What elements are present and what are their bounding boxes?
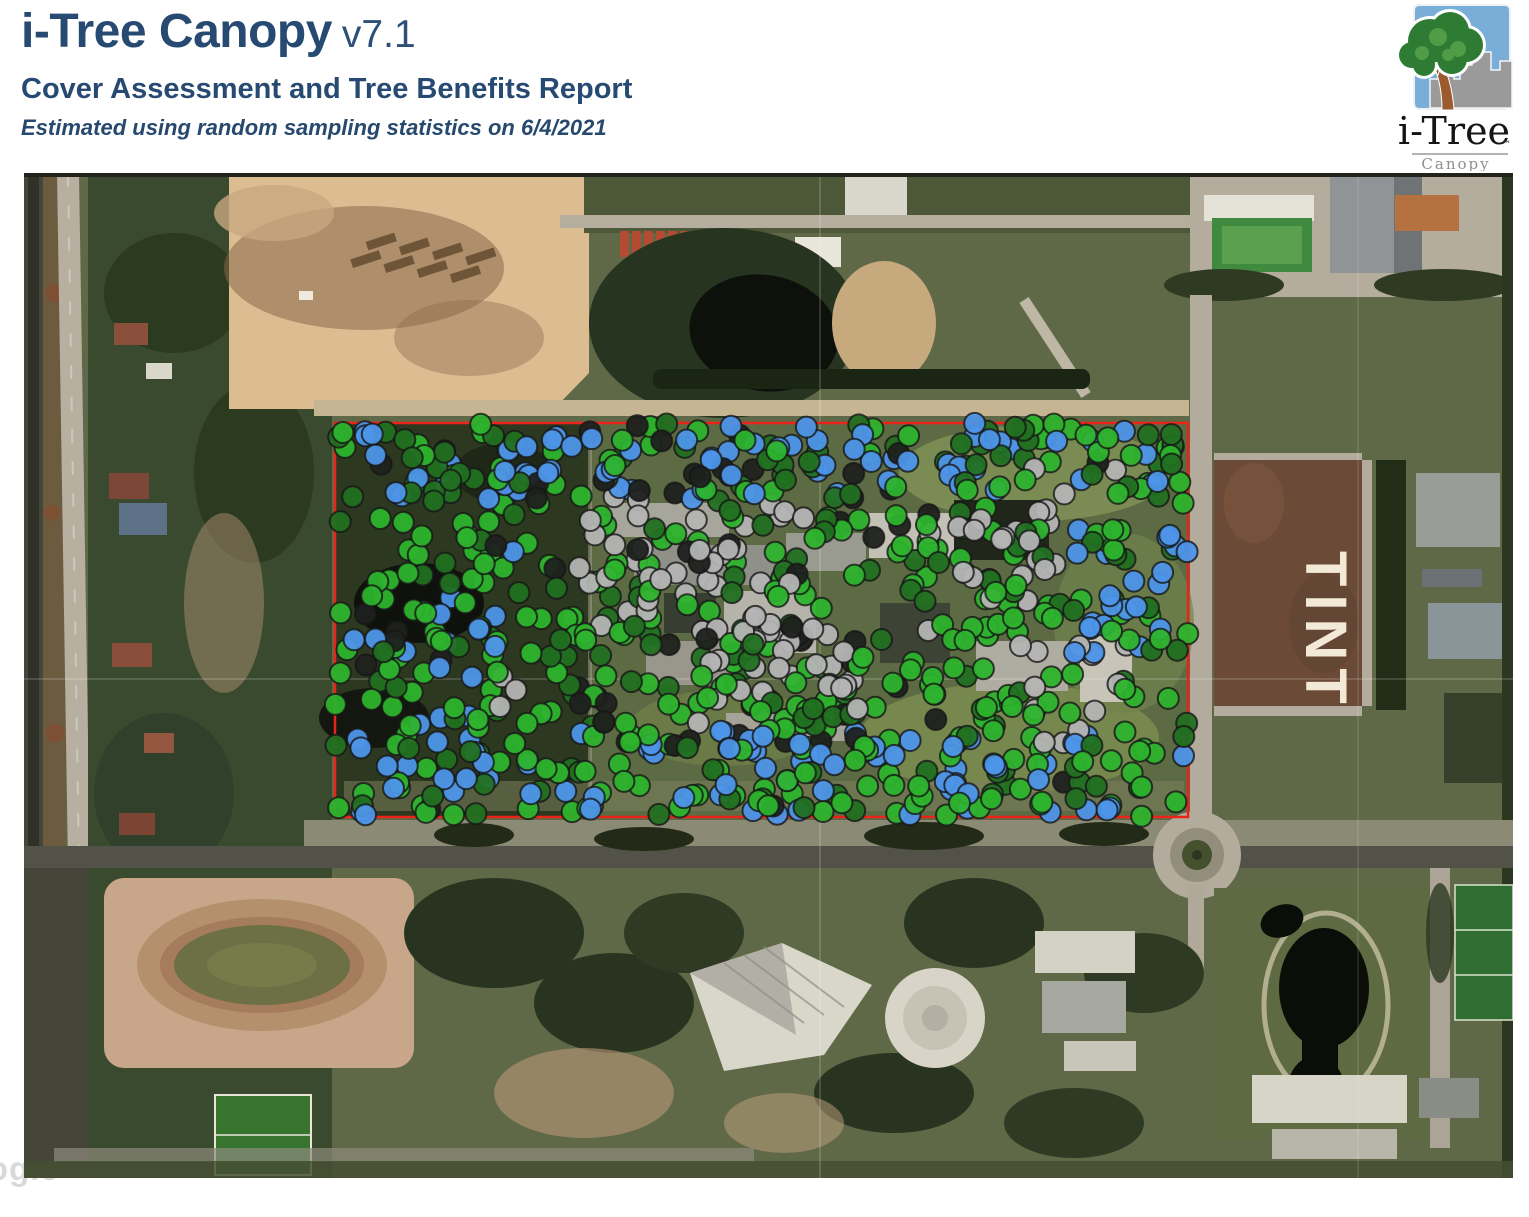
sample-point-bright-green bbox=[1102, 519, 1123, 540]
sample-point-bright-green bbox=[455, 592, 476, 613]
sample-point-black bbox=[570, 693, 591, 714]
sample-point-black bbox=[593, 711, 614, 732]
sample-point-black bbox=[485, 535, 506, 556]
sample-point-blue bbox=[1177, 541, 1198, 562]
sample-point-bright-green bbox=[330, 663, 351, 684]
sample-point-dark-green bbox=[1082, 464, 1103, 485]
sample-point-bright-green bbox=[1023, 705, 1044, 726]
sample-point-bright-green bbox=[857, 776, 878, 797]
sample-point-blue bbox=[897, 451, 918, 472]
sample-point-bright-green bbox=[981, 788, 1002, 809]
sample-point-gray bbox=[953, 562, 974, 583]
sample-point-gray bbox=[1010, 635, 1031, 656]
sample-point-bright-green bbox=[1097, 427, 1118, 448]
sample-point-blue bbox=[716, 774, 737, 795]
sample-point-bright-green bbox=[883, 775, 904, 796]
northeast-campus bbox=[1164, 173, 1513, 301]
sample-point-bright-green bbox=[456, 527, 477, 548]
sample-point-dark-green bbox=[550, 629, 571, 650]
sample-point-bright-green bbox=[620, 732, 641, 753]
sample-point-dark-green bbox=[508, 582, 529, 603]
sample-point-bright-green bbox=[604, 560, 625, 581]
sample-point-blue bbox=[580, 799, 601, 820]
sample-point-dark-green bbox=[840, 484, 861, 505]
sample-point-bright-green bbox=[892, 535, 913, 556]
sample-point-bright-green bbox=[595, 665, 616, 686]
sample-point-bright-green bbox=[571, 486, 592, 507]
sample-point-bright-green bbox=[1131, 806, 1152, 827]
itree-logo-graphic: i-Tree ™ Canopy bbox=[1396, 3, 1516, 171]
sample-point-blue bbox=[456, 768, 477, 789]
itree-canopy-logo: i-Tree ™ Canopy bbox=[1396, 3, 1516, 171]
sample-point-dark-green bbox=[1063, 600, 1084, 621]
sample-point-gray bbox=[490, 696, 511, 717]
sample-point-bright-green bbox=[444, 697, 465, 718]
sample-point-gray bbox=[689, 540, 710, 561]
sample-point-bright-green bbox=[1114, 679, 1135, 700]
sample-point-blue bbox=[1159, 525, 1180, 546]
sample-point-dark-green bbox=[423, 491, 444, 512]
sample-point-bright-green bbox=[393, 512, 414, 533]
sample-point-dark-green bbox=[928, 552, 949, 573]
sample-point-blue bbox=[377, 756, 398, 777]
sample-point-bright-green bbox=[845, 750, 866, 771]
report-header: i-Tree Canopyv7.1 Cover Assessment and T… bbox=[21, 6, 632, 141]
sample-point-bright-green bbox=[1173, 493, 1194, 514]
logo-trademark: ™ bbox=[1502, 140, 1511, 150]
sample-point-bright-green bbox=[750, 701, 771, 722]
sample-point-bright-green bbox=[1108, 483, 1129, 504]
sample-point-bright-green bbox=[658, 694, 679, 715]
sample-point-black bbox=[696, 629, 717, 650]
sample-point-dark-green bbox=[720, 500, 741, 521]
sample-point-blue bbox=[1126, 596, 1147, 617]
sample-point-blue bbox=[494, 461, 515, 482]
sample-point-bright-green bbox=[1158, 688, 1179, 709]
sample-point-blue bbox=[844, 439, 865, 460]
sample-point-blue bbox=[537, 462, 558, 483]
sample-point-gray bbox=[505, 680, 526, 701]
sample-point-blue bbox=[943, 736, 964, 757]
field-painted-label: TINT bbox=[1293, 551, 1358, 712]
sample-point-bright-green bbox=[516, 606, 537, 627]
sample-point-blue bbox=[462, 667, 483, 688]
sample-point-gray bbox=[569, 557, 590, 578]
sample-point-blue bbox=[1173, 745, 1194, 766]
sample-point-black bbox=[627, 539, 648, 560]
sample-point-bright-green bbox=[536, 758, 557, 779]
sample-point-black bbox=[651, 430, 672, 451]
sample-point-gray bbox=[1084, 701, 1105, 722]
sample-point-dark-green bbox=[915, 591, 936, 612]
sample-point-bright-green bbox=[467, 709, 488, 730]
sample-point-blue bbox=[1079, 617, 1100, 638]
sample-point-black bbox=[690, 466, 711, 487]
sample-point-bright-green bbox=[1062, 664, 1083, 685]
sample-point-dark-green bbox=[1086, 776, 1107, 797]
page-title: i-Tree Canopyv7.1 bbox=[21, 6, 632, 59]
sample-point-bright-green bbox=[976, 697, 997, 718]
sample-point-dark-green bbox=[743, 634, 764, 655]
sample-point-bright-green bbox=[989, 476, 1010, 497]
sample-point-gray bbox=[1034, 732, 1055, 753]
sample-point-blue bbox=[561, 436, 582, 457]
sample-point-bright-green bbox=[400, 715, 421, 736]
dome-building bbox=[885, 968, 985, 1068]
sample-point-blue bbox=[1147, 471, 1168, 492]
sample-point-dark-green bbox=[752, 515, 773, 536]
sample-point-bright-green bbox=[1015, 469, 1036, 490]
sample-point-bright-green bbox=[768, 586, 789, 607]
sample-point-gray bbox=[1054, 483, 1075, 504]
sample-point-blue bbox=[362, 424, 383, 445]
sample-point-blue bbox=[355, 804, 376, 825]
sample-point-bright-green bbox=[916, 514, 937, 535]
sample-point-blue bbox=[542, 429, 563, 450]
sample-point-blue bbox=[1099, 585, 1120, 606]
sample-point-dark-green bbox=[330, 511, 351, 532]
sample-point-bright-green bbox=[957, 480, 978, 501]
sample-point-blue bbox=[478, 488, 499, 509]
sample-point-bright-green bbox=[361, 585, 382, 606]
sample-point-bright-green bbox=[758, 795, 779, 816]
sample-point-bright-green bbox=[415, 603, 436, 624]
sample-point-bright-green bbox=[766, 440, 787, 461]
sample-point-gray bbox=[1019, 530, 1040, 551]
sample-point-bright-green bbox=[785, 672, 806, 693]
sample-point-blue bbox=[744, 483, 765, 504]
sport-courts bbox=[1455, 885, 1513, 1020]
sample-point-dark-green bbox=[1161, 454, 1182, 475]
sample-point-dark-green bbox=[434, 442, 455, 463]
sample-point-gray bbox=[964, 520, 985, 541]
sample-point-blue bbox=[1097, 799, 1118, 820]
sample-point-bright-green bbox=[697, 687, 718, 708]
sample-point-bright-green bbox=[949, 793, 970, 814]
sample-point-blue bbox=[429, 657, 450, 678]
sample-point-blue bbox=[721, 465, 742, 486]
sample-point-bright-green bbox=[1076, 425, 1097, 446]
sample-point-dark-green bbox=[677, 737, 698, 758]
sample-point-gray bbox=[833, 642, 854, 663]
sample-point-bright-green bbox=[443, 804, 464, 825]
sample-point-dark-green bbox=[546, 578, 567, 599]
sample-point-bright-green bbox=[1042, 608, 1063, 629]
sample-point-bright-green bbox=[1165, 791, 1186, 812]
sample-point-bright-green bbox=[716, 674, 737, 695]
sample-point-dark-green bbox=[342, 486, 363, 507]
sample-point-blue bbox=[1028, 769, 1049, 790]
sample-point-blue bbox=[1152, 562, 1173, 583]
sample-point-blue bbox=[719, 738, 740, 759]
sample-point-gray bbox=[580, 510, 601, 531]
sample-point-gray bbox=[628, 505, 649, 526]
sample-point-bright-green bbox=[615, 713, 636, 734]
sample-point-black bbox=[925, 709, 946, 730]
logo-product-text: Canopy bbox=[1421, 155, 1490, 171]
aerial-map[interactable]: TINT bbox=[24, 173, 1513, 1178]
sample-point-dark-green bbox=[794, 797, 815, 818]
sample-point-bright-green bbox=[1101, 621, 1122, 642]
satellite-imagery: TINT bbox=[24, 173, 1513, 1178]
sample-point-bright-green bbox=[332, 422, 353, 443]
sample-point-blue bbox=[468, 619, 489, 640]
sample-point-bright-green bbox=[882, 673, 903, 694]
sample-point-black bbox=[863, 527, 884, 548]
sample-point-bright-green bbox=[1103, 540, 1124, 561]
sample-point-bright-green bbox=[361, 689, 382, 710]
sample-point-black bbox=[356, 654, 377, 675]
sample-point-bright-green bbox=[985, 582, 1006, 603]
sample-point-blue bbox=[581, 428, 602, 449]
sample-point-blue bbox=[386, 482, 407, 503]
sample-point-dark-green bbox=[435, 553, 456, 574]
sample-point-dark-green bbox=[641, 634, 662, 655]
sample-point-dark-green bbox=[440, 470, 461, 491]
sample-point-bright-green bbox=[474, 553, 495, 574]
sample-point-black bbox=[526, 488, 547, 509]
sample-point-blue bbox=[427, 732, 448, 753]
sample-point-bright-green bbox=[1032, 792, 1053, 813]
sample-point-bright-green bbox=[885, 477, 906, 498]
sample-point-dark-green bbox=[465, 803, 486, 824]
stadium-track bbox=[104, 878, 414, 1068]
sample-point-bright-green bbox=[1121, 445, 1142, 466]
sample-point-bright-green bbox=[487, 662, 508, 683]
sample-point-blue bbox=[979, 429, 1000, 450]
sample-point-blue bbox=[383, 778, 404, 799]
app-version: v7.1 bbox=[342, 13, 416, 56]
sample-point-dark-green bbox=[871, 629, 892, 650]
sample-point-bright-green bbox=[943, 657, 964, 678]
sample-point-bright-green bbox=[613, 771, 634, 792]
sample-point-blue bbox=[676, 430, 697, 451]
sample-point-dark-green bbox=[624, 616, 645, 637]
sample-point-blue bbox=[824, 754, 845, 775]
sample-point-bright-green bbox=[677, 594, 698, 615]
app-title: i-Tree Canopy bbox=[21, 5, 332, 58]
sample-point-bright-green bbox=[575, 761, 596, 782]
sample-point-dark-green bbox=[1173, 726, 1194, 747]
sample-point-blue bbox=[516, 436, 537, 457]
sample-point-bright-green bbox=[1131, 777, 1152, 798]
sample-point-bright-green bbox=[330, 602, 351, 623]
sample-point-bright-green bbox=[575, 630, 596, 651]
sample-point-black bbox=[629, 480, 650, 501]
sample-point-bright-green bbox=[431, 631, 452, 652]
sample-point-bright-green bbox=[1072, 751, 1093, 772]
sample-point-bright-green bbox=[886, 505, 907, 526]
sample-point-bright-green bbox=[691, 666, 712, 687]
sample-point-gray bbox=[831, 678, 852, 699]
sample-point-dark-green bbox=[621, 671, 642, 692]
sample-point-bright-green bbox=[795, 762, 816, 783]
logo-brand-text: i-Tree bbox=[1398, 109, 1510, 153]
sample-point-bright-green bbox=[955, 630, 976, 651]
sample-point-gray bbox=[686, 509, 707, 530]
tile-seam bbox=[24, 173, 1513, 177]
sample-point-dark-green bbox=[326, 735, 347, 756]
sample-point-gray bbox=[802, 619, 823, 640]
sample-point-dark-green bbox=[373, 641, 394, 662]
sample-point-dark-green bbox=[422, 786, 443, 807]
sample-point-bright-green bbox=[898, 425, 919, 446]
sample-point-bright-green bbox=[1059, 703, 1080, 724]
sample-point-gray bbox=[604, 534, 625, 555]
sample-point-blue bbox=[1123, 571, 1144, 592]
sample-point-dark-green bbox=[1138, 424, 1159, 445]
report-subtitle: Cover Assessment and Tree Benefits Repor… bbox=[21, 73, 632, 106]
sample-point-dark-green bbox=[440, 573, 461, 594]
sample-point-blue bbox=[1046, 431, 1067, 452]
sample-point-bright-green bbox=[470, 414, 491, 435]
sample-point-gray bbox=[1024, 677, 1045, 698]
sample-point-blue bbox=[673, 787, 694, 808]
sample-point-bright-green bbox=[665, 523, 686, 544]
sample-point-dark-green bbox=[648, 804, 669, 825]
sample-point-gray bbox=[991, 529, 1012, 550]
sample-point-dark-green bbox=[504, 504, 525, 525]
sample-point-bright-green bbox=[900, 659, 921, 680]
sample-point-gray bbox=[650, 569, 671, 590]
sample-point-gray bbox=[806, 654, 827, 675]
sample-point-dark-green bbox=[799, 451, 820, 472]
sample-point-dark-green bbox=[951, 433, 972, 454]
sample-point-black bbox=[544, 558, 565, 579]
sample-point-bright-green bbox=[504, 733, 525, 754]
sample-point-bright-green bbox=[765, 542, 786, 563]
sample-point-bright-green bbox=[831, 792, 852, 813]
sample-point-bright-green bbox=[1003, 608, 1024, 629]
sample-point-blue bbox=[350, 737, 371, 758]
sample-point-blue bbox=[796, 417, 817, 438]
sample-point-bright-green bbox=[397, 563, 418, 584]
construction-site bbox=[214, 173, 589, 409]
sample-point-blue bbox=[485, 636, 506, 657]
sample-point-gray bbox=[1034, 559, 1055, 580]
sample-point-dark-green bbox=[803, 698, 824, 719]
sample-point-bright-green bbox=[411, 526, 432, 547]
sample-point-dark-green bbox=[721, 582, 742, 603]
sample-point-gray bbox=[847, 698, 868, 719]
sample-point-bright-green bbox=[1101, 750, 1122, 771]
sample-point-bright-green bbox=[1150, 629, 1171, 650]
sample-point-blue bbox=[1067, 543, 1088, 564]
sample-point-bright-green bbox=[908, 776, 929, 797]
sample-point-dark-green bbox=[1161, 424, 1182, 445]
sample-point-gray bbox=[793, 507, 814, 528]
sample-point-bright-green bbox=[844, 565, 865, 586]
sample-point-bright-green bbox=[382, 696, 403, 717]
sample-point-dark-green bbox=[402, 447, 423, 468]
sample-point-bright-green bbox=[521, 643, 542, 664]
sample-point-black bbox=[782, 617, 803, 638]
sample-point-bright-green bbox=[328, 797, 349, 818]
sample-point-blue bbox=[789, 734, 810, 755]
sample-point-dark-green bbox=[460, 741, 481, 762]
sample-point-bright-green bbox=[604, 455, 625, 476]
sample-point-gray bbox=[774, 501, 795, 522]
sample-point-blue bbox=[1064, 642, 1085, 663]
sample-point-bright-green bbox=[1002, 696, 1023, 717]
sample-point-bright-green bbox=[1006, 575, 1027, 596]
sample-point-dark-green bbox=[775, 470, 796, 491]
sample-point-gray bbox=[768, 658, 789, 679]
sample-point-blue bbox=[755, 758, 776, 779]
sample-point-dark-green bbox=[1066, 788, 1087, 809]
sample-point-blue bbox=[365, 445, 386, 466]
sample-point-bright-green bbox=[1115, 722, 1136, 743]
sample-point-bright-green bbox=[325, 694, 346, 715]
sample-point-blue bbox=[344, 629, 365, 650]
sample-point-bright-green bbox=[517, 713, 538, 734]
sample-point-bright-green bbox=[973, 658, 994, 679]
sample-point-dark-green bbox=[398, 738, 419, 759]
sample-point-gray bbox=[745, 606, 766, 627]
sample-point-bright-green bbox=[735, 430, 756, 451]
sample-point-bright-green bbox=[852, 647, 873, 668]
sample-point-bright-green bbox=[804, 528, 825, 549]
sample-point-bright-green bbox=[612, 430, 633, 451]
sample-point-blue bbox=[964, 413, 985, 434]
sample-point-blue bbox=[984, 754, 1005, 775]
sample-point-bright-green bbox=[1129, 741, 1150, 762]
sample-point-blue bbox=[753, 726, 774, 747]
sample-point-bright-green bbox=[923, 684, 944, 705]
sample-point-bright-green bbox=[370, 508, 391, 529]
sample-point-dark-green bbox=[1005, 417, 1026, 438]
report-date-note: Estimated using random sampling statisti… bbox=[21, 115, 632, 141]
sample-point-blue bbox=[813, 780, 834, 801]
sample-point-blue bbox=[884, 745, 905, 766]
sample-point-blue bbox=[520, 783, 541, 804]
sample-point-bright-green bbox=[983, 720, 1004, 741]
